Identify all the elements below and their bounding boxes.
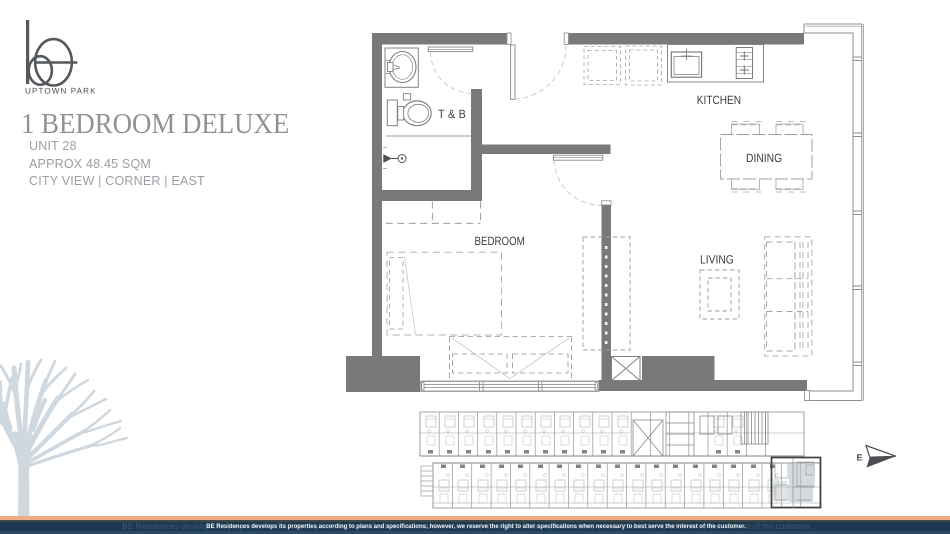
svg-text:T & B: T & B — [438, 107, 466, 121]
svg-text:KITCHEN: KITCHEN — [697, 93, 741, 107]
svg-text:LIVING: LIVING — [700, 253, 734, 267]
svg-text:E: E — [857, 453, 863, 463]
svg-text:DINING: DINING — [746, 151, 782, 165]
svg-text:BEDROOM: BEDROOM — [475, 234, 525, 248]
